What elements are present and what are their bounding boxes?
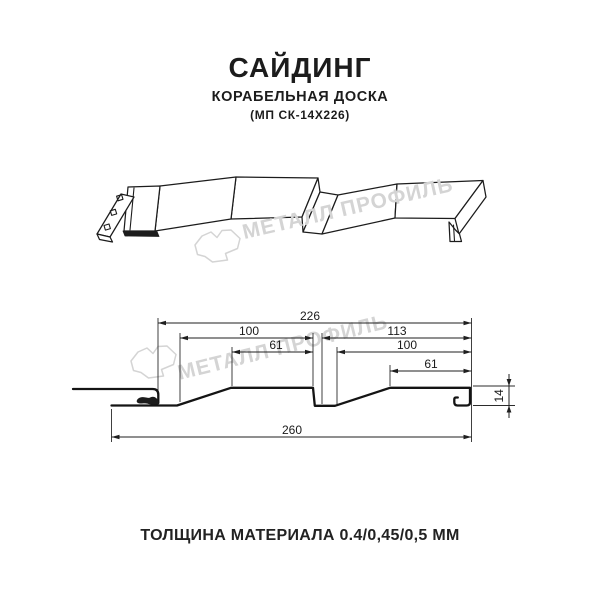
lock-seam-curl (137, 397, 158, 404)
dim-board2-flat: 61 (424, 357, 438, 371)
page-title: САЙДИНГ (0, 52, 600, 84)
profile-section-drawing: МЕТАЛЛ ПРОФИЛЬ 226 100 (35, 295, 570, 450)
watermark-lower: МЕТАЛЛ ПРОФИЛЬ (131, 310, 390, 385)
dim-board2-inner: 100 (397, 338, 417, 352)
metall-profil-logo-icon (195, 230, 240, 262)
title-block: САЙДИНГ КОРАБЕЛЬНАЯ ДОСКА (МП СК-14Х226) (0, 0, 600, 122)
board1-slope-face (155, 177, 236, 231)
dimension-lines (112, 321, 512, 440)
lock-pocket-bottom (123, 231, 159, 237)
dim-profile-height: 14 (492, 389, 506, 403)
profile-3d-drawing: МЕТАЛЛ ПРОФИЛЬ (80, 145, 500, 280)
dim-board2-width: 113 (387, 324, 406, 338)
page: { "header": { "title": "САЙДИНГ", "subti… (0, 0, 600, 600)
main-profile-line (112, 388, 471, 406)
metall-profil-logo-icon (131, 346, 176, 378)
watermark-text: МЕТАЛЛ ПРОФИЛЬ (175, 310, 390, 385)
dim-board1-flat: 61 (269, 338, 283, 352)
extension-lines (112, 318, 516, 442)
dim-overall-width: 260 (282, 423, 302, 437)
dim-total-top: 226 (300, 309, 320, 323)
product-code: (МП СК-14Х226) (0, 108, 600, 122)
section-profile (73, 388, 470, 406)
page-subtitle: КОРАБЕЛЬНАЯ ДОСКА (0, 89, 600, 105)
dim-board1-width: 100 (239, 324, 259, 338)
lock-pocket-band (124, 186, 160, 231)
thickness-note: ТОЛЩИНА МАТЕРИАЛА 0.4/0,45/0,5 ММ (0, 527, 600, 545)
